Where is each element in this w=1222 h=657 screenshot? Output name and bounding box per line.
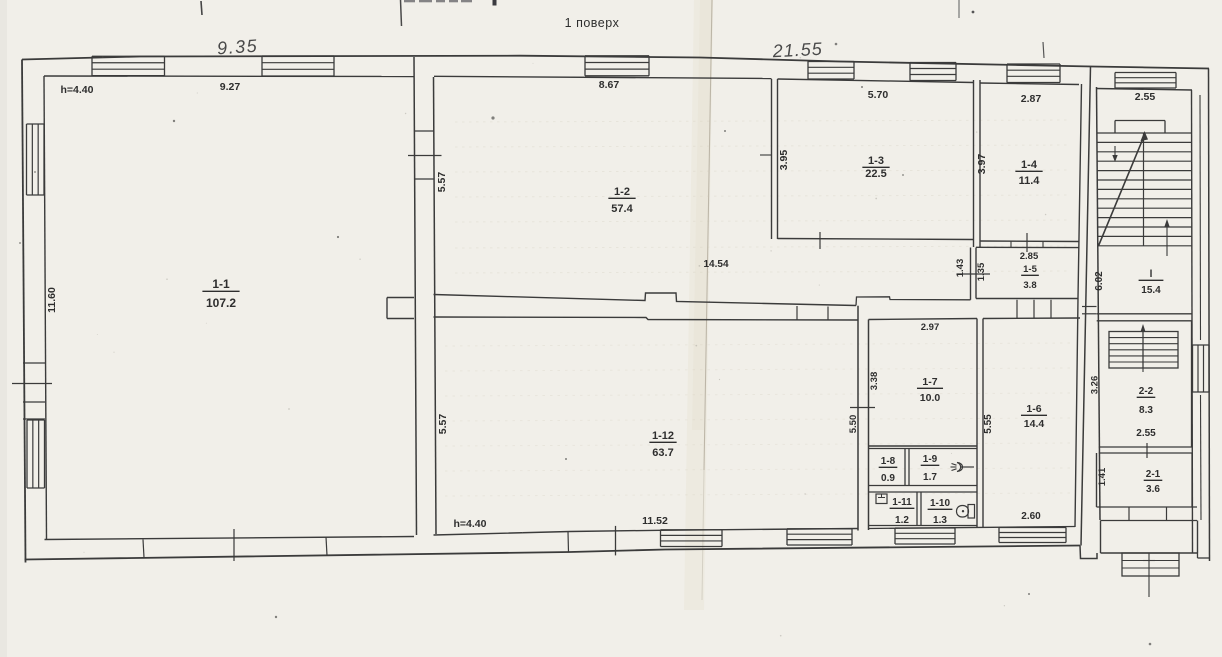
- svg-text:11.52: 11.52: [642, 515, 668, 527]
- svg-text:3.26: 3.26: [1090, 376, 1101, 395]
- svg-text:9.27: 9.27: [220, 81, 241, 93]
- svg-text:1-4: 1-4: [1021, 159, 1038, 171]
- svg-text:5.57: 5.57: [436, 172, 448, 193]
- svg-text:1.2: 1.2: [895, 515, 909, 526]
- svg-text:2-2: 2-2: [1139, 386, 1154, 397]
- svg-text:3.38: 3.38: [869, 372, 880, 391]
- svg-text:63.7: 63.7: [652, 447, 673, 459]
- svg-text:2.55: 2.55: [1135, 91, 1156, 103]
- svg-text:57.4: 57.4: [611, 203, 633, 215]
- svg-text:107.2: 107.2: [206, 296, 236, 310]
- svg-text:5.57: 5.57: [437, 414, 449, 435]
- svg-text:1-5: 1-5: [1023, 264, 1037, 275]
- svg-text:1.41: 1.41: [1097, 467, 1108, 486]
- svg-text:h=4.40: h=4.40: [61, 84, 94, 96]
- svg-text:0.9: 0.9: [881, 473, 895, 484]
- svg-text:21.55: 21.55: [771, 39, 823, 62]
- svg-text:1-12: 1-12: [652, 430, 674, 442]
- svg-text:h=4.40: h=4.40: [454, 518, 487, 530]
- svg-text:1.7: 1.7: [923, 472, 937, 483]
- svg-text:3.8: 3.8: [1023, 280, 1036, 291]
- svg-text:1 поверх: 1 поверх: [565, 16, 620, 30]
- svg-text:8.3: 8.3: [1139, 405, 1153, 416]
- svg-text:22.5: 22.5: [865, 168, 886, 180]
- svg-text:2.97: 2.97: [921, 322, 940, 333]
- svg-text:1-10: 1-10: [930, 498, 950, 509]
- svg-text:1.35: 1.35: [976, 262, 987, 281]
- svg-text:1-1: 1-1: [212, 277, 230, 291]
- svg-text:6.02: 6.02: [1094, 271, 1105, 291]
- svg-text:1-7: 1-7: [922, 376, 937, 388]
- svg-text:14.4: 14.4: [1024, 418, 1045, 430]
- svg-text:1-2: 1-2: [614, 186, 630, 198]
- svg-text:2.87: 2.87: [1021, 93, 1042, 105]
- svg-text:11.4: 11.4: [1019, 175, 1041, 187]
- svg-text:14.54: 14.54: [703, 259, 728, 270]
- svg-text:1.43: 1.43: [955, 259, 966, 278]
- svg-text:3.97: 3.97: [976, 154, 988, 175]
- svg-text:2-1: 2-1: [1146, 469, 1161, 480]
- svg-text:11.60: 11.60: [46, 287, 58, 313]
- svg-text:10.0: 10.0: [920, 392, 941, 404]
- svg-text:1-9: 1-9: [923, 454, 938, 465]
- svg-text:l: l: [1150, 269, 1153, 280]
- svg-text:5.55: 5.55: [983, 414, 994, 434]
- svg-text:3.6: 3.6: [1146, 484, 1160, 495]
- svg-text:1.3: 1.3: [933, 515, 947, 526]
- svg-text:1-8: 1-8: [881, 456, 896, 467]
- svg-text:5.70: 5.70: [868, 89, 889, 101]
- svg-text:1-6: 1-6: [1026, 403, 1041, 415]
- svg-text:2.55: 2.55: [1136, 428, 1156, 439]
- svg-text:1-3: 1-3: [868, 155, 884, 167]
- svg-text:8.67: 8.67: [599, 79, 620, 91]
- svg-text:3.95: 3.95: [778, 150, 790, 171]
- svg-text:2.60: 2.60: [1021, 511, 1041, 522]
- svg-text:15.4: 15.4: [1141, 285, 1161, 296]
- svg-text:2.85: 2.85: [1020, 251, 1039, 262]
- svg-text:5.50: 5.50: [848, 415, 859, 434]
- svg-text:9.35: 9.35: [216, 36, 258, 59]
- svg-text:1-11: 1-11: [892, 497, 912, 508]
